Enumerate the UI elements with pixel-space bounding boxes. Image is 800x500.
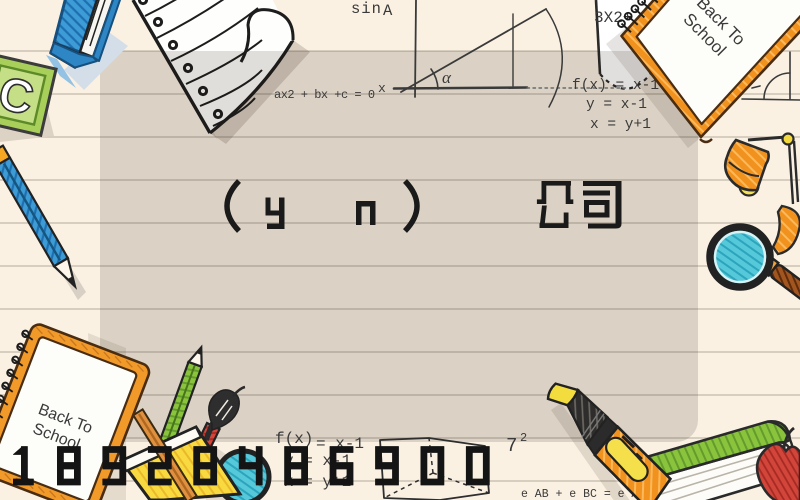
svg-text:y = x-1: y = x-1 [586, 97, 647, 113]
svg-text:3X2+: 3X2+ [594, 9, 632, 27]
svg-text:x: x [378, 81, 386, 96]
svg-text:α: α [442, 68, 452, 87]
svg-text:A: A [383, 2, 393, 20]
svg-text:ax2 + bx +c = 0: ax2 + bx +c = 0 [274, 88, 375, 102]
svg-text:f(x): f(x) [275, 430, 313, 448]
svg-text:x = y+1: x = y+1 [590, 117, 651, 133]
svg-text:2: 2 [520, 431, 527, 445]
svg-text:7: 7 [506, 435, 517, 457]
svg-text:sin: sin [351, 0, 382, 18]
